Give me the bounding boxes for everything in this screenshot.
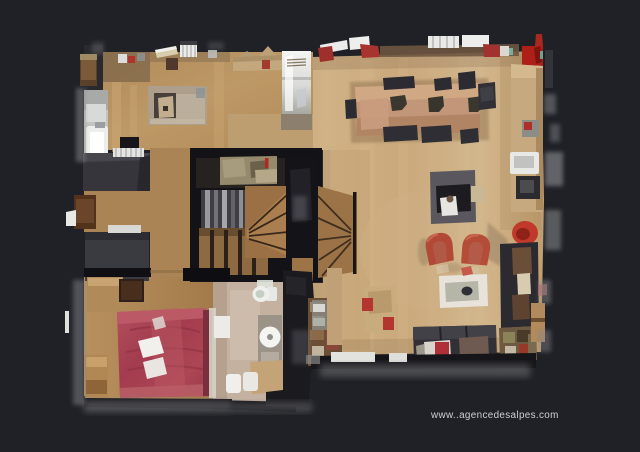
svg-text:www..agencedesalpes.com: www..agencedesalpes.com [430, 410, 559, 421]
